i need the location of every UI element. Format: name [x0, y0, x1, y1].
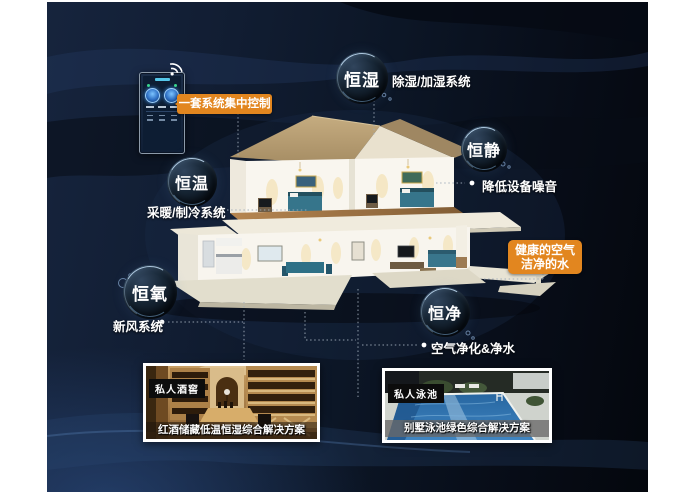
annotation-air-water-purification: 空气净化&净水 — [431, 338, 515, 357]
benefit-box: 健康的空气 洁净的水 — [508, 240, 582, 274]
pool-caption: 别墅泳池绿色综合解决方案 — [385, 420, 549, 437]
benefit-line-1: 健康的空气 — [508, 243, 582, 257]
benefit-line-2: 洁净的水 — [508, 257, 582, 271]
background-board: 私人酒窖 红酒储藏低温恒湿综合解决方案 — [47, 2, 648, 492]
wine-cellar-tag: 私人酒窖 — [149, 379, 205, 398]
annotation-reduce-equipment-noise: 降低设备噪音 — [482, 176, 557, 195]
control-panel-screen — [143, 76, 181, 150]
annotation-dehumidify-humidify-system: 除湿/加湿系统 — [392, 71, 470, 90]
panel-menu-row-2 — [147, 119, 177, 121]
panel-status-dots — [147, 84, 177, 87]
panel-divider — [146, 111, 178, 112]
photo-wine-cellar: 私人酒窖 红酒储藏低温恒湿综合解决方案 — [143, 363, 320, 442]
bubble-constant-oxygen: 恒氧 — [123, 265, 177, 319]
central-control-label: 一套系统集中控制 — [177, 94, 272, 114]
bubble-constant-quiet: 恒静 — [461, 126, 507, 172]
annotation-fresh-air-system: 新风系统 — [113, 316, 163, 335]
dial-left — [145, 88, 160, 103]
infographic-canvas: 私人酒窖 红酒储藏低温恒湿综合解决方案 — [0, 0, 700, 497]
annotation-heating-cooling-system: 采暖/制冷系统 — [147, 202, 225, 221]
bubble-constant-temperature: 恒温 — [167, 157, 217, 207]
panel-title-bar — [155, 78, 170, 81]
bubble-constant-humidity: 恒湿 — [336, 52, 388, 104]
wine-cellar-caption: 红酒储藏低温恒湿综合解决方案 — [146, 422, 317, 439]
pool-tag: 私人泳池 — [388, 384, 444, 403]
bubble-constant-purity: 恒净 — [420, 287, 470, 337]
photo-private-pool: 私人泳池 别墅泳池绿色综合解决方案 — [382, 368, 552, 443]
wifi-signal-icon — [167, 60, 185, 76]
panel-menu-row-1 — [147, 115, 177, 117]
